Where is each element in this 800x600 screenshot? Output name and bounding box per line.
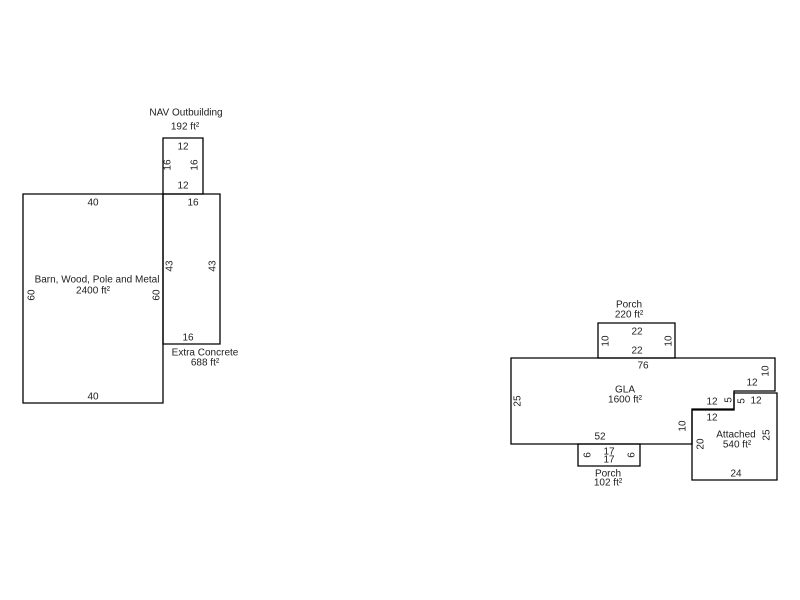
porch-top-dim-label: 10 <box>664 335 675 347</box>
porch-top-group: Porch220 ft²22101022 <box>598 300 675 359</box>
attached-area-label: 540 ft² <box>723 440 752 451</box>
gla-dim-label: 10 <box>761 365 772 377</box>
porch-top-dim-label: 22 <box>631 346 643 357</box>
extra-concrete-area-label: 688 ft² <box>191 358 220 369</box>
porch-bottom-area-label: 102 ft² <box>594 478 623 489</box>
extra-concrete-dim-label: 16 <box>182 333 194 344</box>
attached-dim-label: 25 <box>762 429 773 441</box>
gla-dim-label: 12 <box>706 397 718 408</box>
barn-dim-label: 40 <box>87 392 99 403</box>
nav-outbuilding-dim-label: 16 <box>163 159 174 171</box>
extra-concrete-dim-label: 43 <box>165 260 176 272</box>
porch-top-dim-label: 10 <box>601 335 612 347</box>
barn-name-label: Barn, Wood, Pole and Metal <box>35 275 160 286</box>
barn-dim-label: 60 <box>152 289 163 301</box>
gla-dim-label: 5 <box>724 397 735 403</box>
barn-outline <box>23 194 163 403</box>
nav-outbuilding-dim-label: 12 <box>177 181 189 192</box>
sketch-page: NAV Outbuilding192 ft²1216161240Barn, Wo… <box>0 0 800 600</box>
extra-concrete-dim-label: 43 <box>208 260 219 272</box>
barn-dim-label: 40 <box>87 198 99 209</box>
attached-dim-label: 12 <box>706 413 718 424</box>
attached-group: 12512Attached540 ft²252024 <box>692 393 777 480</box>
attached-dim-label: 24 <box>730 469 742 480</box>
gla-dim-label: 52 <box>594 432 606 443</box>
gla-dim-label: 25 <box>513 395 524 407</box>
porch-top-area-label: 220 ft² <box>615 310 644 321</box>
porch-top-dim-label: 22 <box>631 327 643 338</box>
gla-area-label: 1600 ft² <box>608 395 643 406</box>
porch-bottom-dim-label: 6 <box>627 452 638 458</box>
gla-dim-label: 12 <box>746 378 758 389</box>
gla-dim-label: 10 <box>678 420 689 432</box>
porch-bottom-dim-label: 17 <box>603 455 615 466</box>
nav-outbuilding-name-label: NAV Outbuilding <box>149 108 222 119</box>
porch-bottom-group: 171766Porch102 ft² <box>578 444 640 489</box>
gla-dim-label: 76 <box>637 361 649 372</box>
porch-bottom-dim-label: 6 <box>583 452 594 458</box>
nav-outbuilding-area-label: 192 ft² <box>171 122 200 133</box>
attached-dim-label: 5 <box>737 398 748 404</box>
attached-dim-label: 20 <box>696 438 707 450</box>
floorplan-sketch-canvas: NAV Outbuilding192 ft²1216161240Barn, Wo… <box>0 0 800 600</box>
nav-outbuilding-dim-label: 12 <box>177 142 189 153</box>
nav-outbuilding-dim-label: 16 <box>190 159 201 171</box>
extra-concrete-dim-label: 16 <box>187 198 199 209</box>
barn-group: 40Barn, Wood, Pole and Metal2400 ft²6060… <box>23 194 163 403</box>
barn-area-label: 2400 ft² <box>76 286 111 297</box>
extra-concrete-group: 16434316Extra Concrete688 ft² <box>163 194 239 369</box>
attached-dim-label: 12 <box>750 396 762 407</box>
barn-dim-label: 60 <box>27 289 38 301</box>
nav-outbuilding-group: NAV Outbuilding192 ft²12161612 <box>149 108 222 195</box>
